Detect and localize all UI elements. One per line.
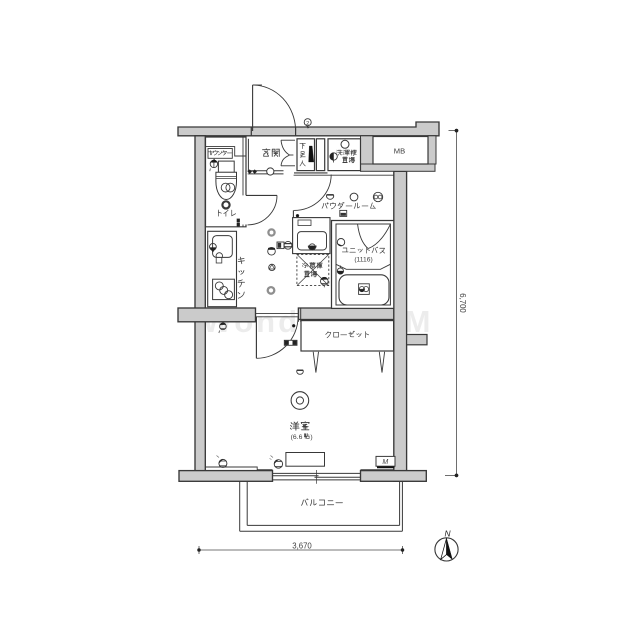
svg-text:MB: MB <box>394 147 405 156</box>
svg-text:N: N <box>444 529 451 539</box>
svg-text:): ) <box>310 434 312 441</box>
svg-text:6,700: 6,700 <box>458 293 467 313</box>
svg-text:(1116): (1116) <box>354 256 372 263</box>
svg-text:3,670: 3,670 <box>292 542 312 551</box>
svg-text:M: M <box>382 459 388 466</box>
svg-text:(6.6: (6.6 <box>291 434 303 441</box>
